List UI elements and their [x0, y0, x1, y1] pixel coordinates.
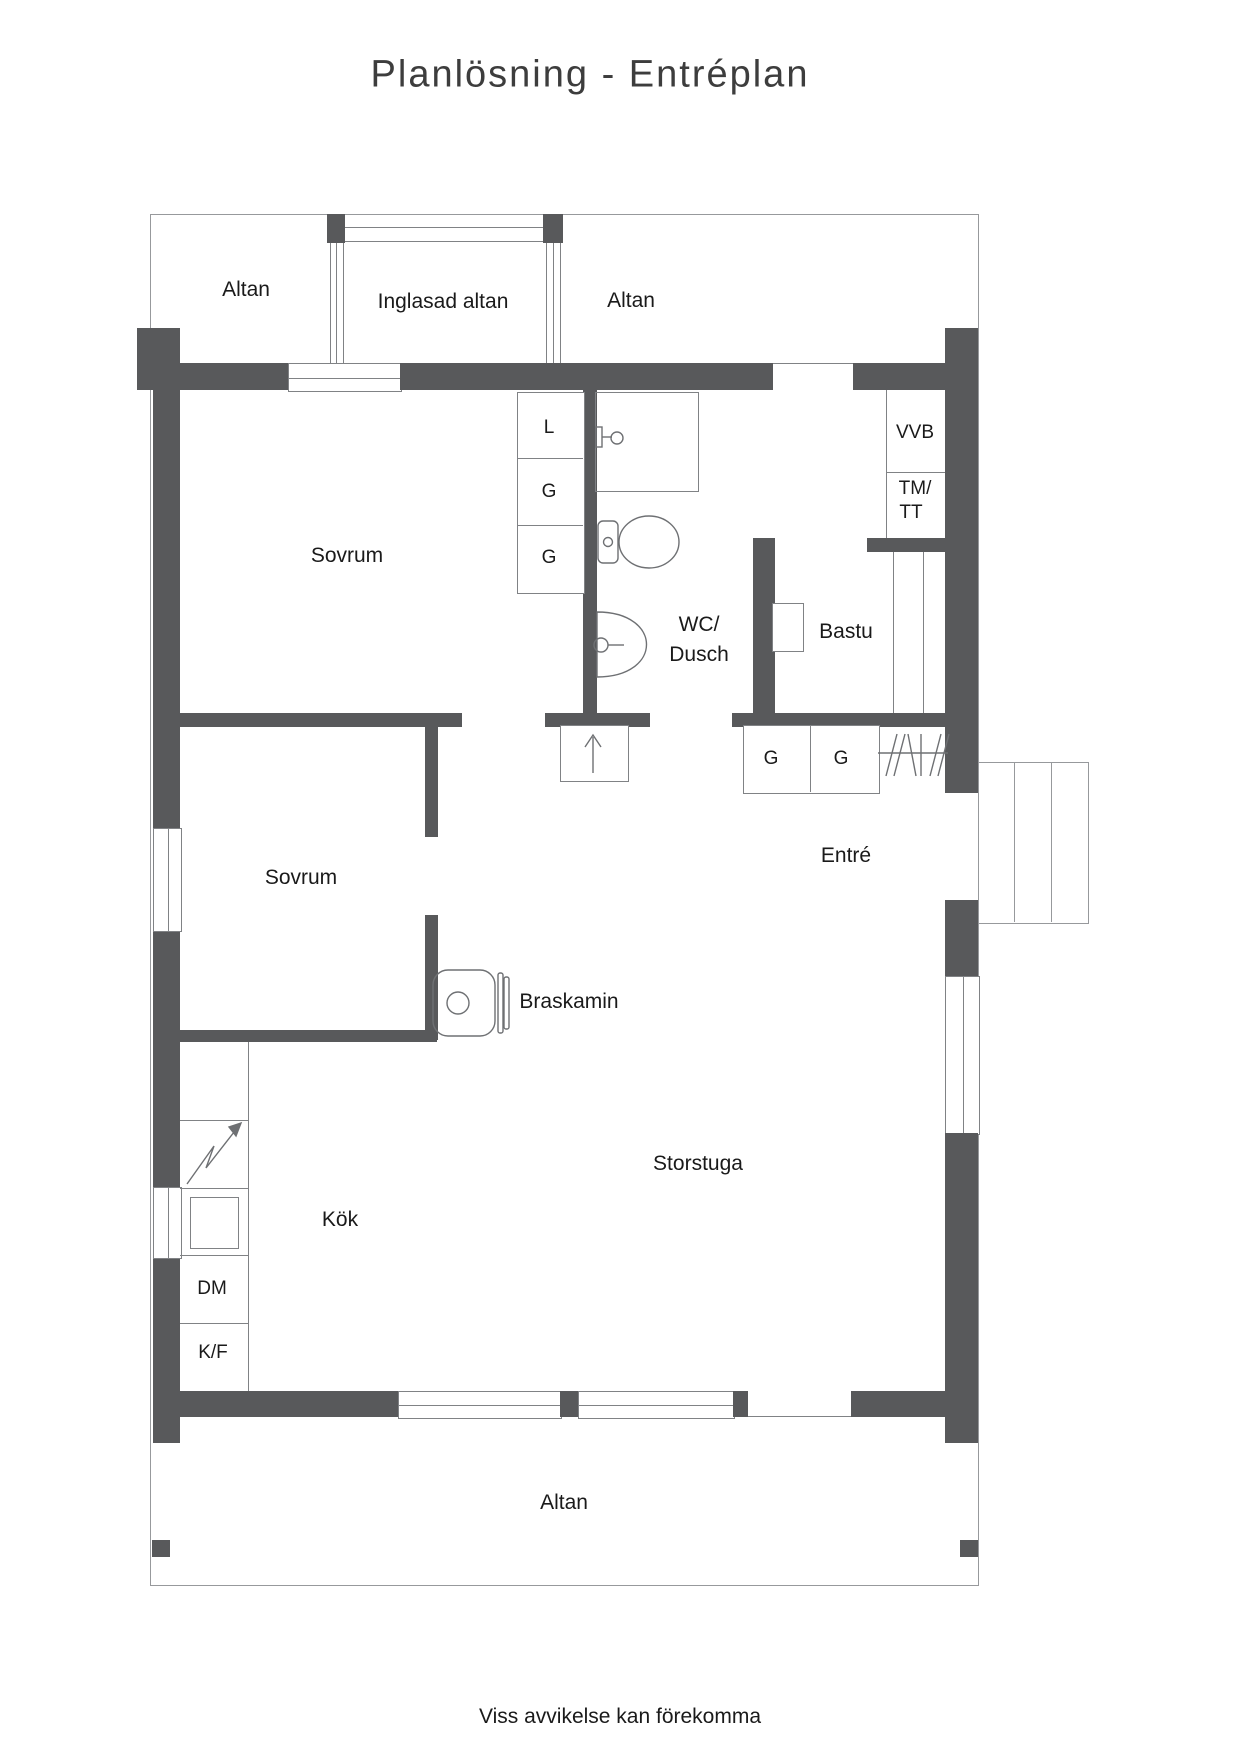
room-label-dusch: Dusch: [669, 643, 729, 667]
label-fridge-freezer: K/F: [198, 1342, 228, 1364]
room-label-entre: Entré: [821, 844, 871, 868]
room-label-bastu: Bastu: [819, 620, 873, 644]
stairs-up-arrow: [585, 735, 601, 773]
label-tumble-dryer: TT: [899, 502, 922, 524]
room-label-altan-bottom: Altan: [540, 1491, 588, 1515]
closet-label-entre-wardrobe: G: [834, 748, 849, 770]
room-label-storstuga: Storstuga: [653, 1152, 743, 1176]
fireplace-icon: [433, 970, 509, 1036]
room-label-inglasad-altan: Inglasad altan: [378, 290, 509, 314]
closet-label-linen: L: [544, 417, 555, 439]
electric-stove-icon: [187, 1123, 241, 1184]
room-label-wc: WC/: [679, 613, 720, 637]
room-label-sovrum-lower: Sovrum: [265, 866, 337, 890]
label-dishwasher: DM: [197, 1278, 227, 1300]
label-fireplace: Braskamin: [519, 990, 618, 1014]
closet-label-wardrobe: G: [542, 547, 557, 569]
label-washing-machine: TM/: [899, 478, 932, 500]
room-label-kok: Kök: [322, 1208, 358, 1232]
floor-plan-page: Planlösning - Entréplan: [0, 0, 1240, 1754]
label-water-heater: VVB: [896, 422, 934, 444]
room-label-altan-top-right: Altan: [607, 289, 655, 313]
sink-icon: [594, 612, 647, 677]
closet-label-wardrobe: G: [542, 481, 557, 503]
disclaimer-text: Viss avvikelse kan förekomma: [479, 1705, 761, 1729]
closet-label-entre-wardrobe: G: [764, 748, 779, 770]
room-label-altan-top-left: Altan: [222, 278, 270, 302]
toilet-icon: [598, 516, 679, 568]
shower-icon: [596, 427, 623, 447]
coat-rack-icon: [878, 734, 949, 776]
room-label-sovrum-upper: Sovrum: [311, 544, 383, 568]
fixtures-layer: [0, 0, 1240, 1754]
